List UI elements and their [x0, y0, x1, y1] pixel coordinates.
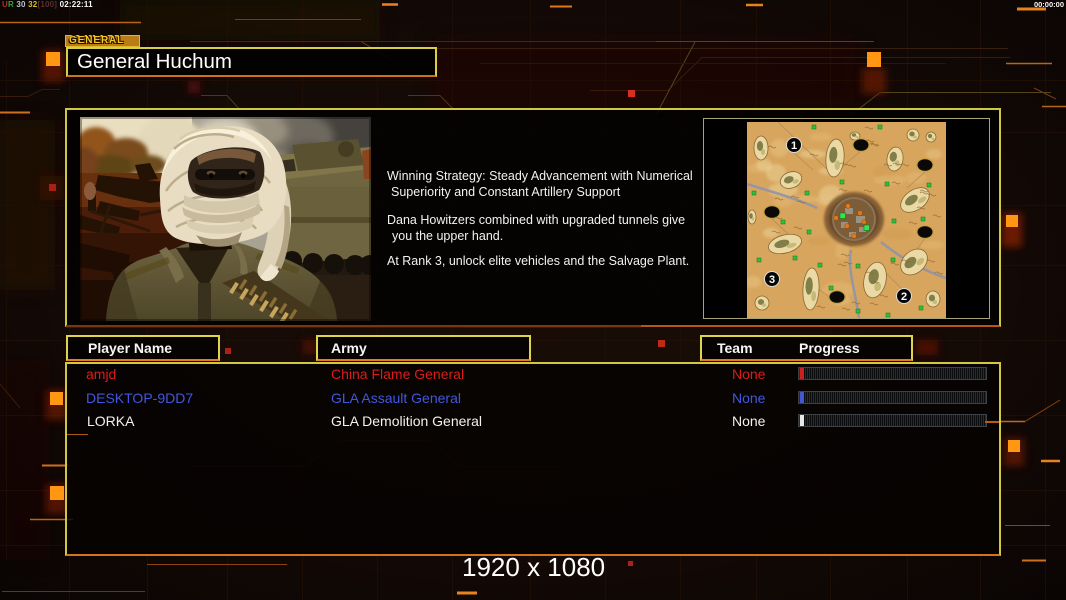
svg-text:3: 3	[769, 274, 775, 286]
svg-text:2: 2	[901, 291, 907, 303]
svg-text:1: 1	[791, 140, 797, 152]
